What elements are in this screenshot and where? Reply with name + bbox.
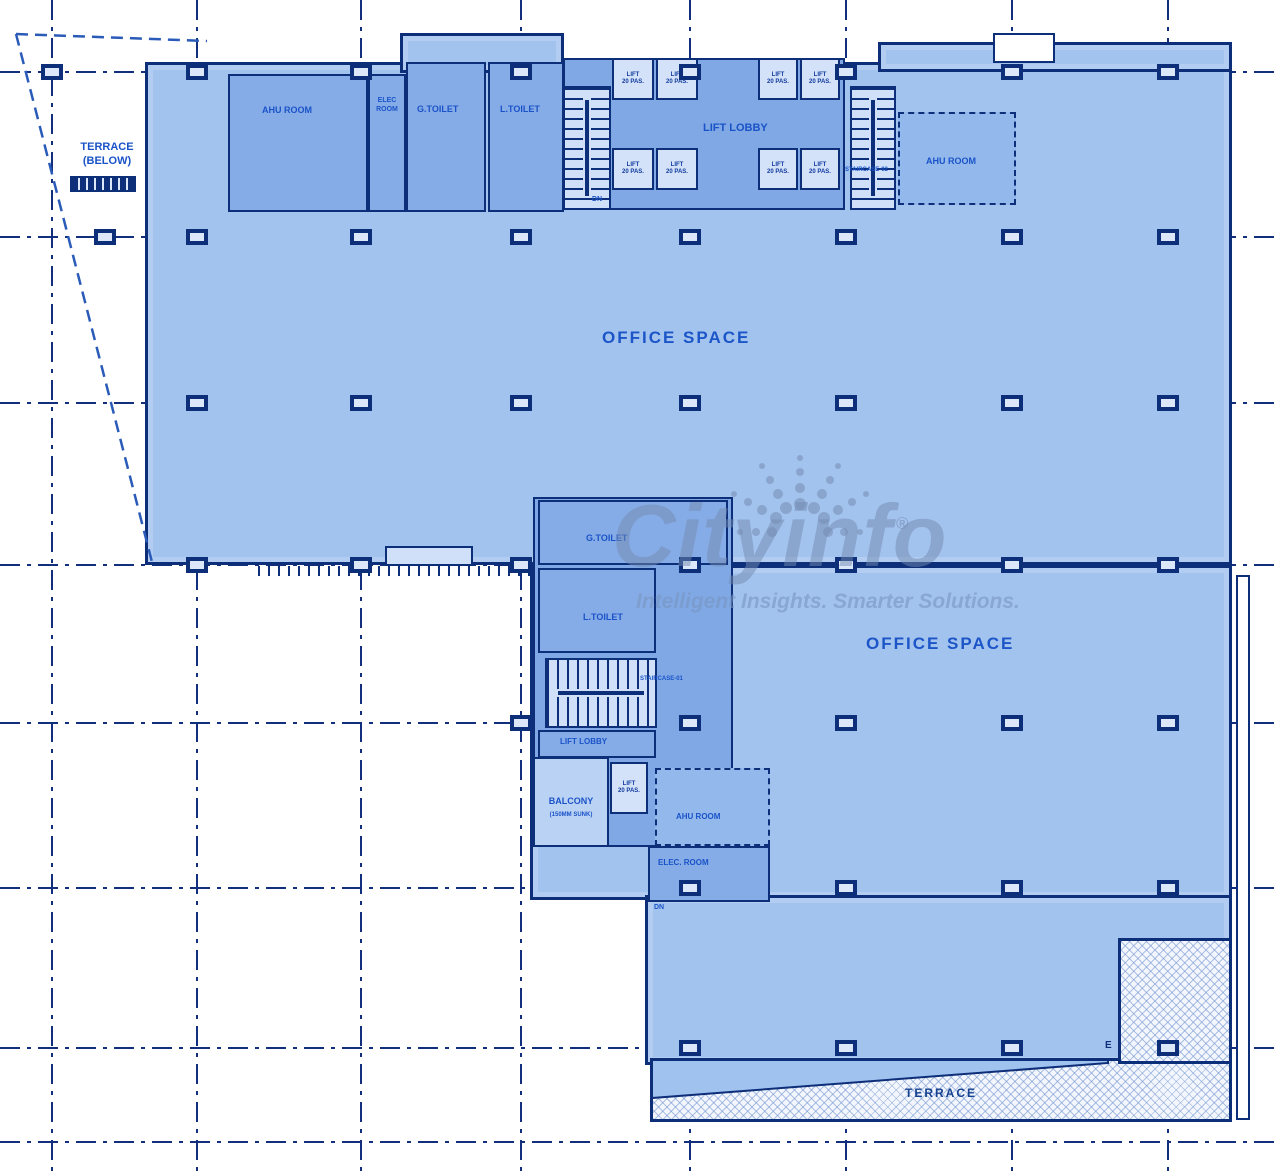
column-marker bbox=[510, 715, 532, 731]
column-marker bbox=[1157, 64, 1179, 80]
ahu-room-lower-label: AHU ROOM bbox=[676, 812, 720, 821]
lift-cell: LIFT20 PAS. bbox=[610, 762, 648, 814]
balcony-line2: (150MM SUNK) bbox=[550, 812, 593, 818]
lift-label: LIFT bbox=[814, 72, 827, 79]
lift-capacity: 20 PAS. bbox=[809, 169, 831, 176]
grid-line-horizontal bbox=[0, 1141, 1275, 1143]
column-marker bbox=[1001, 395, 1023, 411]
column-marker bbox=[350, 64, 372, 80]
lift-label: LIFT bbox=[671, 162, 684, 169]
column-marker bbox=[1157, 880, 1179, 896]
stair-rail bbox=[556, 689, 647, 697]
column-marker bbox=[1157, 395, 1179, 411]
gents-toilet-lower bbox=[538, 500, 728, 565]
elec-room-upper-label: ELEC ROOM bbox=[368, 96, 406, 114]
lift-cell: LIFT20 PAS. bbox=[758, 58, 798, 100]
column-marker bbox=[835, 1040, 857, 1056]
stair-rail bbox=[869, 98, 877, 199]
lift-capacity: 20 PAS. bbox=[809, 79, 831, 86]
terrace-below-slant-edge bbox=[16, 34, 152, 562]
grid-line-vertical bbox=[51, 0, 53, 1171]
gents-toilet-lower-label: G.TOILET bbox=[586, 533, 627, 543]
column-marker bbox=[835, 880, 857, 896]
column-marker bbox=[1001, 1040, 1023, 1056]
column-marker bbox=[835, 395, 857, 411]
column-marker bbox=[835, 715, 857, 731]
elec-room-lower-label: ELEC. ROOM bbox=[658, 858, 709, 867]
lift-label: LIFT bbox=[627, 162, 640, 169]
column-marker bbox=[679, 64, 701, 80]
staircase-02-label: STAIRCASE-02 bbox=[845, 167, 888, 173]
column-marker bbox=[510, 395, 532, 411]
column-marker bbox=[679, 715, 701, 731]
column-marker bbox=[186, 64, 208, 80]
column-marker bbox=[679, 880, 701, 896]
column-marker bbox=[1001, 229, 1023, 245]
column-marker bbox=[1001, 880, 1023, 896]
stair-rail bbox=[583, 98, 591, 199]
lift-capacity: 20 PAS. bbox=[622, 79, 644, 86]
balcony-label: BALCONY (150MM SUNK) bbox=[536, 796, 606, 819]
lift-cell: LIFT20 PAS. bbox=[800, 58, 840, 100]
column-marker bbox=[186, 395, 208, 411]
e-marker-label: E bbox=[1105, 1040, 1112, 1051]
ladies-toilet-lower bbox=[538, 568, 656, 653]
lift-label: LIFT bbox=[623, 781, 636, 788]
staircase-01-label: STAIRCASE-01 bbox=[640, 676, 683, 682]
column-marker bbox=[1157, 1040, 1179, 1056]
lift-lobby-lower-label: LIFT LOBBY bbox=[560, 737, 607, 746]
terrace-below-line1: TERRACE bbox=[80, 141, 133, 153]
column-marker bbox=[1157, 229, 1179, 245]
column-marker bbox=[94, 229, 116, 245]
lift-label: LIFT bbox=[772, 162, 785, 169]
column-marker bbox=[835, 64, 857, 80]
column-marker bbox=[350, 395, 372, 411]
column-marker bbox=[1157, 715, 1179, 731]
dn-lower-label: DN bbox=[654, 904, 664, 911]
balcony-line1: BALCONY bbox=[549, 796, 594, 806]
column-marker bbox=[1001, 715, 1023, 731]
column-marker bbox=[350, 229, 372, 245]
column-marker bbox=[679, 557, 701, 573]
staircase-01-lower bbox=[545, 658, 657, 728]
elec-room-upper bbox=[368, 74, 406, 212]
ahu-room-upper-left bbox=[228, 74, 368, 212]
ahu-room-upper-right-label: AHU ROOM bbox=[926, 156, 976, 166]
staircase-02-upper bbox=[850, 86, 896, 210]
column-marker bbox=[41, 64, 63, 80]
column-marker bbox=[186, 229, 208, 245]
column-marker bbox=[186, 557, 208, 573]
column-marker bbox=[1001, 64, 1023, 80]
lift-cell: LIFT20 PAS. bbox=[800, 148, 840, 190]
lift-capacity: 20 PAS. bbox=[767, 79, 789, 86]
window-detail bbox=[385, 546, 473, 566]
roof-notch bbox=[993, 33, 1055, 63]
column-marker bbox=[350, 557, 372, 573]
gents-toilet-upper bbox=[406, 62, 486, 212]
floor-plan: LIFT20 PAS. LIFT20 PAS. LIFT20 PAS. LIFT… bbox=[0, 0, 1275, 1171]
office-space-lower-label: OFFICE SPACE bbox=[866, 634, 1014, 654]
column-marker bbox=[1001, 557, 1023, 573]
ladies-toilet-upper-label: L.TOILET bbox=[500, 104, 540, 114]
column-marker bbox=[679, 395, 701, 411]
lift-cell: LIFT20 PAS. bbox=[612, 148, 654, 190]
terrace-below-line2: (BELOW) bbox=[83, 155, 131, 167]
ladies-toilet-upper bbox=[488, 62, 564, 212]
column-marker bbox=[835, 557, 857, 573]
ahu-room-lower bbox=[655, 768, 770, 846]
lift-label: LIFT bbox=[772, 72, 785, 79]
column-marker bbox=[510, 557, 532, 573]
dn-upper-label: DN bbox=[592, 196, 602, 203]
lift-capacity: 20 PAS. bbox=[666, 169, 688, 176]
lift-capacity: 20 PAS. bbox=[767, 169, 789, 176]
terrace-below-label: TERRACE (BELOW) bbox=[62, 140, 152, 169]
office-space-upper-label: OFFICE SPACE bbox=[602, 328, 750, 348]
ahu-room-upper-left-label: AHU ROOM bbox=[262, 105, 312, 115]
column-marker bbox=[679, 229, 701, 245]
right-perimeter-wall bbox=[1236, 575, 1250, 1120]
lift-lobby-upper-label: LIFT LOBBY bbox=[703, 122, 768, 134]
window-mullion-ticks bbox=[258, 566, 538, 576]
lift-cell: LIFT20 PAS. bbox=[656, 148, 698, 190]
lift-label: LIFT bbox=[627, 72, 640, 79]
staircase-01-upper bbox=[563, 86, 611, 210]
lift-cell: LIFT20 PAS. bbox=[758, 148, 798, 190]
gents-toilet-upper-label: G.TOILET bbox=[417, 104, 458, 114]
terrace-bottom-label: TERRACE bbox=[905, 1086, 977, 1100]
terrace-below-top-edge bbox=[16, 34, 207, 41]
lift-capacity: 20 PAS. bbox=[622, 169, 644, 176]
elec-room-lower bbox=[648, 846, 770, 902]
column-marker bbox=[510, 64, 532, 80]
column-marker bbox=[679, 1040, 701, 1056]
terrace-tag-box bbox=[70, 176, 136, 192]
lift-label: LIFT bbox=[814, 162, 827, 169]
lift-capacity: 20 PAS. bbox=[618, 788, 640, 795]
column-marker bbox=[510, 229, 532, 245]
lift-cell: LIFT20 PAS. bbox=[612, 58, 654, 100]
column-marker bbox=[835, 229, 857, 245]
column-marker bbox=[1157, 557, 1179, 573]
ladies-toilet-lower-label: L.TOILET bbox=[583, 612, 623, 622]
